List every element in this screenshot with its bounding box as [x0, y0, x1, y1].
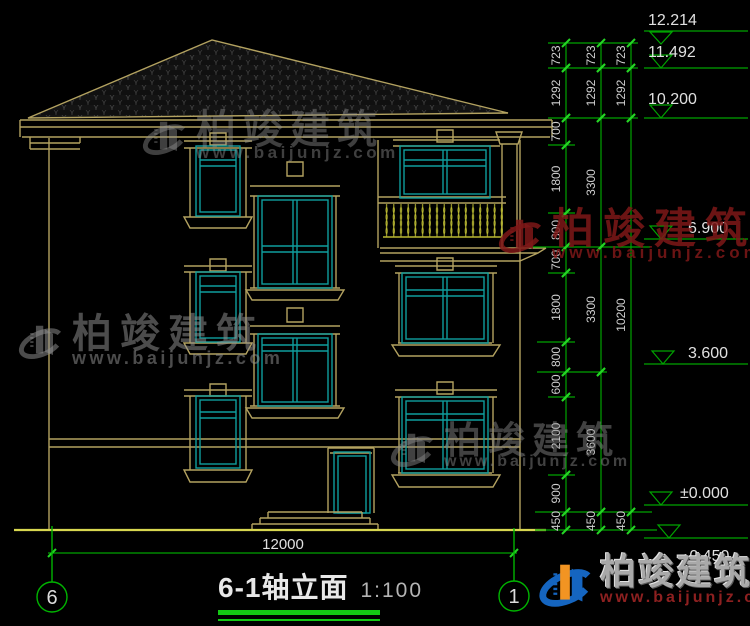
balcony-balusters [383, 204, 503, 237]
dimension-label: 1800 [549, 294, 563, 321]
drawing-title: 6-1轴立面 [218, 566, 348, 606]
floor-band [49, 439, 520, 447]
sill [246, 288, 344, 300]
dimension-label: 1292 [549, 79, 563, 106]
dimension-label: 450 [584, 511, 598, 531]
stair-window-2 [184, 259, 252, 354]
balcony-slab [380, 248, 546, 261]
dimension-label: 723 [549, 45, 563, 65]
keystone [210, 133, 226, 145]
column-capital [496, 132, 522, 144]
eave-cornice [20, 120, 552, 137]
center-window-2f [246, 162, 344, 300]
column-shaft [502, 144, 517, 248]
right-window-2f [392, 258, 500, 356]
dimension-label: 900 [549, 483, 563, 503]
sill [184, 470, 252, 482]
right-window-1f [392, 382, 500, 487]
dimension-label: 3300 [584, 296, 598, 323]
cad-elevation-screenshot: 7231292700180080070018008006002100900450… [0, 0, 750, 626]
dimension-label: 700 [549, 121, 563, 141]
dimension-label: 3600 [584, 428, 598, 455]
dimension-label: 1292 [614, 79, 628, 106]
overall-dimension-value: 12000 [262, 536, 304, 553]
dimension-label: 700 [549, 250, 563, 270]
keystone [437, 382, 453, 394]
elevation-value: -0.450 [684, 548, 729, 565]
center-window-1f [246, 308, 344, 418]
dimension-label: 450 [549, 511, 563, 531]
entry-door [328, 448, 374, 513]
keystone [287, 308, 303, 322]
sill [184, 217, 252, 228]
dimension-label: 10200 [614, 298, 628, 332]
stair-window-3 [184, 384, 252, 482]
keystone [437, 258, 453, 270]
dimension-label: 600 [549, 374, 563, 394]
sill [392, 473, 500, 487]
dimension-label: 723 [614, 45, 628, 65]
entry-steps [252, 512, 378, 530]
dimension-label: 1800 [549, 165, 563, 192]
balcony [378, 197, 546, 261]
dimension-label: 1292 [584, 79, 598, 106]
dimension-label: 800 [549, 220, 563, 240]
title-underline-thick [218, 610, 380, 615]
balcony-window-3f [393, 130, 500, 198]
elevation-value: 11.492 [648, 44, 696, 61]
title-underline-thin [218, 619, 380, 621]
elevation-value: 3.600 [688, 345, 728, 362]
dimension-label: 2100 [549, 422, 563, 449]
dimension-label: 800 [549, 347, 563, 367]
sill [392, 343, 500, 356]
axis-number-left: 6 [46, 587, 57, 609]
sill [184, 343, 252, 354]
drawing-title-block: 6-1轴立面 1:100 [218, 566, 423, 621]
dimension-label: 723 [584, 45, 598, 65]
keystone [210, 259, 226, 271]
axis-number-right: 1 [508, 586, 519, 608]
stair-window-1 [184, 133, 252, 228]
elevation-drawing: 7231292700180080070018008006002100900450… [0, 0, 750, 626]
dimension-label: 450 [614, 511, 628, 531]
elevation-value: 12.214 [648, 12, 697, 29]
elevation-value: 6.900 [688, 220, 728, 237]
hip-roof [20, 40, 552, 149]
drawing-scale: 1:100 [360, 579, 423, 603]
elevation-value: ±0.000 [680, 485, 729, 502]
sill [246, 406, 344, 418]
cornice-left-return [30, 137, 80, 149]
dimension-label: 3300 [584, 169, 598, 196]
elevation-value: 10.200 [648, 91, 697, 108]
keystone [287, 162, 303, 176]
